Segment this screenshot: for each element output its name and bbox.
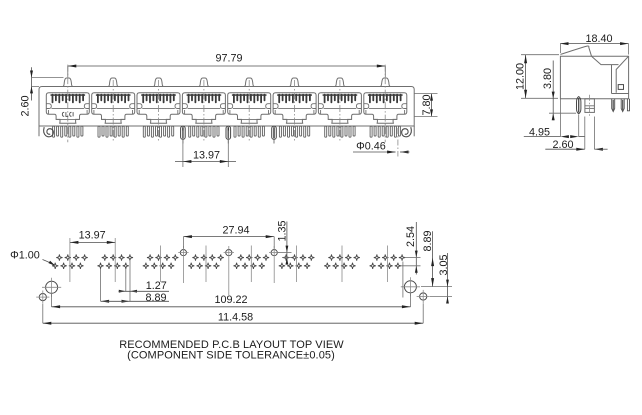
svg-text:3.80: 3.80 (542, 68, 554, 89)
svg-text:1.27: 1.27 (146, 280, 167, 292)
svg-text:2.54: 2.54 (405, 226, 417, 247)
svg-text:8.89: 8.89 (145, 292, 166, 304)
svg-text:Φ0.46: Φ0.46 (356, 141, 386, 153)
svg-text:13.97: 13.97 (79, 230, 106, 242)
svg-text:2.60: 2.60 (20, 95, 32, 116)
svg-text:2.60: 2.60 (552, 139, 573, 151)
svg-text:18.40: 18.40 (585, 33, 612, 45)
svg-text:8.89: 8.89 (422, 230, 434, 251)
svg-text:4.95: 4.95 (529, 126, 550, 138)
svg-text:(COMPONENT SIDE TOLERANCE±0.05: (COMPONENT SIDE TOLERANCE±0.05) (127, 350, 335, 362)
svg-text:13.97: 13.97 (193, 150, 220, 162)
svg-text:Φ1.00: Φ1.00 (10, 250, 40, 262)
svg-text:97.79: 97.79 (215, 53, 242, 65)
svg-text:109.22: 109.22 (214, 294, 247, 306)
svg-text:11.4.58: 11.4.58 (218, 312, 253, 324)
svg-text:7.80: 7.80 (421, 94, 433, 115)
svg-text:12.00: 12.00 (515, 63, 527, 90)
svg-text:1.35: 1.35 (276, 220, 288, 241)
svg-text:27.94: 27.94 (222, 224, 249, 236)
svg-text:3.05: 3.05 (438, 254, 450, 275)
